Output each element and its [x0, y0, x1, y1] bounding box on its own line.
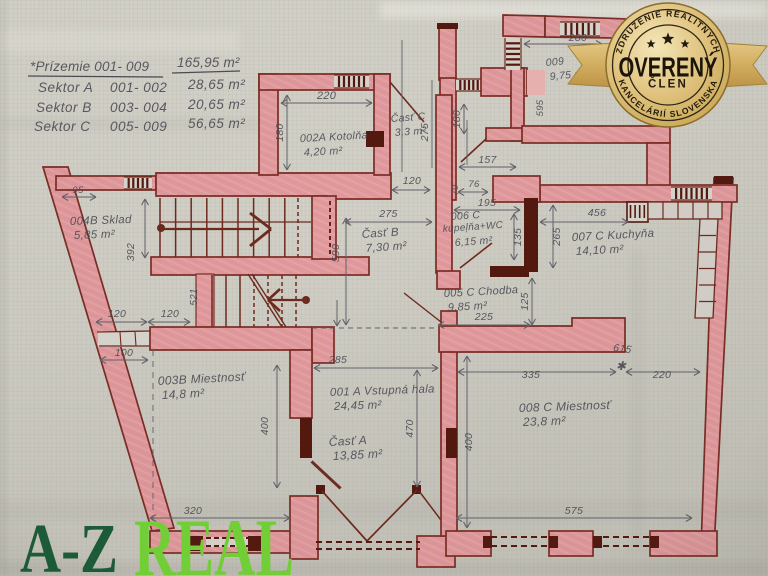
- svg-text:225: 225: [474, 311, 493, 323]
- svg-text:003- 004: 003- 004: [110, 100, 167, 115]
- svg-text:28,65 m²: 28,65 m²: [187, 77, 245, 92]
- svg-text:005- 009: 005- 009: [110, 119, 167, 134]
- svg-text:275: 275: [378, 208, 397, 220]
- svg-text:A-Z: A-Z: [20, 511, 118, 576]
- svg-text:20,65 m²: 20,65 m²: [187, 97, 245, 112]
- svg-text:165,95 m²: 165,95 m²: [177, 55, 240, 70]
- svg-text:180: 180: [451, 110, 463, 128]
- svg-text:180: 180: [274, 123, 286, 141]
- svg-text:120: 120: [108, 308, 126, 320]
- svg-text:Časť B: Časť B: [361, 225, 399, 241]
- svg-text:Časť C: Časť C: [390, 110, 426, 125]
- svg-text:470: 470: [404, 419, 416, 437]
- svg-text:76: 76: [468, 179, 480, 190]
- svg-text:120: 120: [403, 175, 421, 187]
- svg-text:615: 615: [612, 342, 632, 356]
- svg-text:13,85 m²: 13,85 m²: [332, 446, 383, 463]
- svg-text:590: 590: [330, 244, 342, 262]
- svg-text:456: 456: [588, 207, 606, 219]
- svg-text:Časť A: Časť A: [328, 432, 367, 449]
- svg-text:56,65 m²: 56,65 m²: [188, 116, 245, 131]
- svg-text:135: 135: [512, 228, 524, 246]
- svg-text:392: 392: [125, 243, 137, 261]
- svg-text:220: 220: [316, 90, 337, 102]
- svg-text:220: 220: [652, 369, 671, 381]
- svg-text:3,3 m²: 3,3 m²: [394, 125, 427, 139]
- svg-text:100: 100: [115, 347, 133, 359]
- svg-text:157: 157: [478, 154, 497, 166]
- svg-text:001- 002: 001- 002: [110, 80, 167, 95]
- svg-text:Sektor C: Sektor C: [34, 119, 91, 134]
- svg-text:ČLEN: ČLEN: [648, 78, 688, 91]
- svg-text:9,85 m²: 9,85 m²: [448, 300, 488, 314]
- svg-text:✱: ✱: [616, 359, 627, 373]
- svg-text:120: 120: [161, 308, 179, 320]
- svg-text:125: 125: [519, 292, 531, 310]
- svg-text:Sektor B: Sektor B: [36, 100, 92, 115]
- svg-text:REAL: REAL: [134, 502, 294, 576]
- svg-text:23,8 m²: 23,8 m²: [522, 413, 567, 429]
- svg-text:400: 400: [259, 417, 271, 435]
- svg-text:5,85 m²: 5,85 m²: [74, 229, 116, 242]
- svg-text:595: 595: [535, 99, 546, 116]
- svg-text:004B Sklad: 004B Sklad: [70, 214, 133, 228]
- svg-text:95: 95: [72, 185, 84, 196]
- svg-text:Sektor A: Sektor A: [38, 80, 93, 95]
- svg-text:4,20 m²: 4,20 m²: [304, 145, 343, 159]
- svg-text:24,45 m²: 24,45 m²: [333, 399, 383, 413]
- svg-text:195: 195: [478, 197, 496, 209]
- svg-text:285: 285: [328, 354, 347, 366]
- svg-text:400: 400: [463, 433, 475, 451]
- svg-text:14,8 m²: 14,8 m²: [161, 386, 205, 402]
- svg-text:70: 70: [450, 185, 460, 196]
- svg-text:335: 335: [522, 369, 540, 381]
- svg-text:265: 265: [551, 227, 563, 246]
- svg-text:009: 009: [545, 55, 564, 69]
- svg-text:521: 521: [189, 288, 200, 306]
- svg-text:14,10 m²: 14,10 m²: [576, 243, 625, 258]
- svg-text:280: 280: [568, 32, 587, 44]
- svg-text:575: 575: [565, 505, 583, 517]
- svg-text:*Prízemie 001- 009: *Prízemie 001- 009: [30, 59, 149, 74]
